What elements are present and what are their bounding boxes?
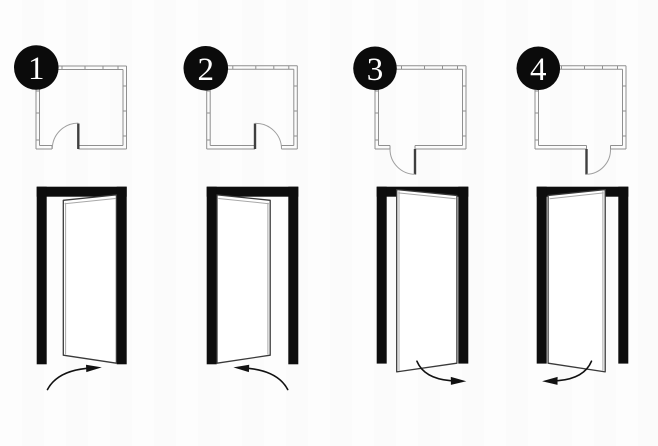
badge-number: 4 [530,52,547,88]
swing-arrowhead [542,377,558,385]
swing-arrowhead [451,377,467,385]
door-frame-right-jamb [117,187,127,365]
variant-4-badge: 4 [517,47,561,91]
door-frame-right-jamb [618,187,628,364]
variant-1-elevation [37,187,127,390]
plan-swing-arc [390,149,415,174]
variant-3-elevation [377,187,469,385]
variant-4: 4 [517,47,629,385]
variant-2-elevation [207,187,299,390]
plan-swing-arc [587,149,611,174]
badge-number: 3 [367,52,384,88]
variant-1: 1 [14,45,127,389]
swing-arrowhead [86,365,102,372]
door-leaf [217,195,270,363]
plan-swing-arc [255,123,282,149]
door-frame-right-jamb [288,187,298,365]
door-leaf [548,190,605,372]
swing-arrow [249,368,288,389]
door-leaf [63,195,116,363]
badge-number: 2 [198,52,215,88]
variant-3-badge: 3 [353,47,397,91]
diagram-svg: 1 2 [0,0,658,446]
door-swing-diagram: 1 2 [0,0,658,446]
door-frame-right-jamb [458,187,468,364]
door-frame-left-jamb [207,187,217,365]
variant-4-elevation [537,187,629,385]
door-frame-left-jamb [37,187,47,365]
variant-2-badge: 2 [184,46,229,91]
swing-arrowhead [233,365,249,372]
variant-2: 2 [184,46,299,390]
variant-1-badge: 1 [14,45,59,90]
door-leaf [397,190,457,372]
plan-swing-arc [52,123,78,149]
swing-arrow [48,368,87,389]
variant-3: 3 [353,47,468,385]
badge-number: 1 [28,51,45,87]
door-frame-left-jamb [537,187,547,364]
door-frame-left-jamb [377,187,387,364]
